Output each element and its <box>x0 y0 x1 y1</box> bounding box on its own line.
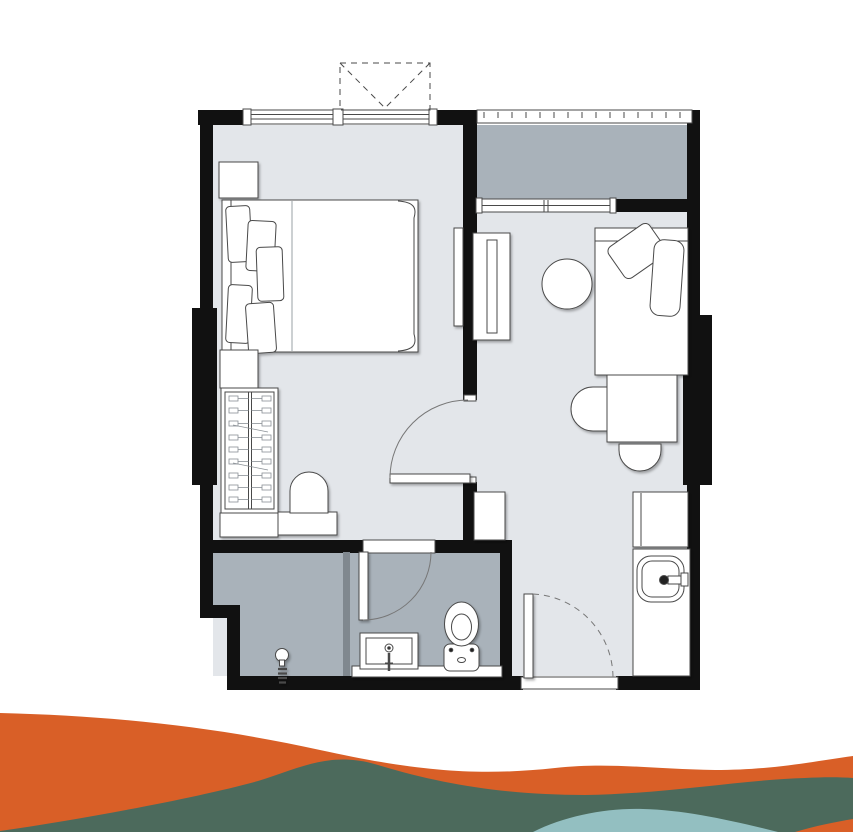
toilet-bowl <box>445 602 479 646</box>
kitchen-furniture <box>633 492 690 676</box>
bedroom-door-leaf <box>390 474 470 483</box>
nightstand-bottom <box>220 350 258 388</box>
double-bed <box>222 200 418 354</box>
wardrobe <box>221 388 278 513</box>
balcony-railing <box>477 110 692 123</box>
wall-right-upper <box>687 110 700 322</box>
vanity-chair <box>290 472 328 513</box>
tv-console <box>473 233 510 340</box>
wall-bath-top-left <box>213 540 363 553</box>
floor-plan-scene <box>0 0 853 832</box>
shower-partition <box>343 552 350 676</box>
nightstand-top <box>219 162 258 198</box>
vanity-counter <box>278 512 337 535</box>
hall-cabinet <box>474 492 505 540</box>
wall-bath-top-right <box>433 540 512 553</box>
entrance-door-leaf <box>524 594 533 678</box>
bathroom-door-leaf <box>359 552 368 620</box>
casement-swing-symbol <box>340 63 430 110</box>
toilet <box>444 602 479 671</box>
decorative-waves <box>0 713 853 832</box>
sink-faucet <box>660 576 669 585</box>
bedroom-wall-tv <box>454 228 463 326</box>
single-bed <box>595 221 688 375</box>
dresser <box>220 513 278 537</box>
sliding-balcony-door <box>476 198 616 213</box>
wall-left-column <box>192 308 217 485</box>
living-tv <box>487 240 497 333</box>
wall-bath-step <box>200 605 240 618</box>
sink-handle-block <box>681 573 688 586</box>
wall-bottom-left <box>227 676 523 690</box>
kitchen-sink <box>637 556 688 602</box>
entrance-threshold <box>521 677 618 689</box>
single-bed-cushion <box>649 239 684 317</box>
bathroom-doorway <box>363 540 435 553</box>
round-table <box>542 259 592 309</box>
wall-balcony-right <box>615 199 692 212</box>
bedroom-window <box>243 109 437 125</box>
fridge-cabinet <box>633 492 688 547</box>
wash-basin <box>360 633 418 671</box>
wall-bath-right <box>500 552 512 676</box>
desk <box>607 375 677 442</box>
